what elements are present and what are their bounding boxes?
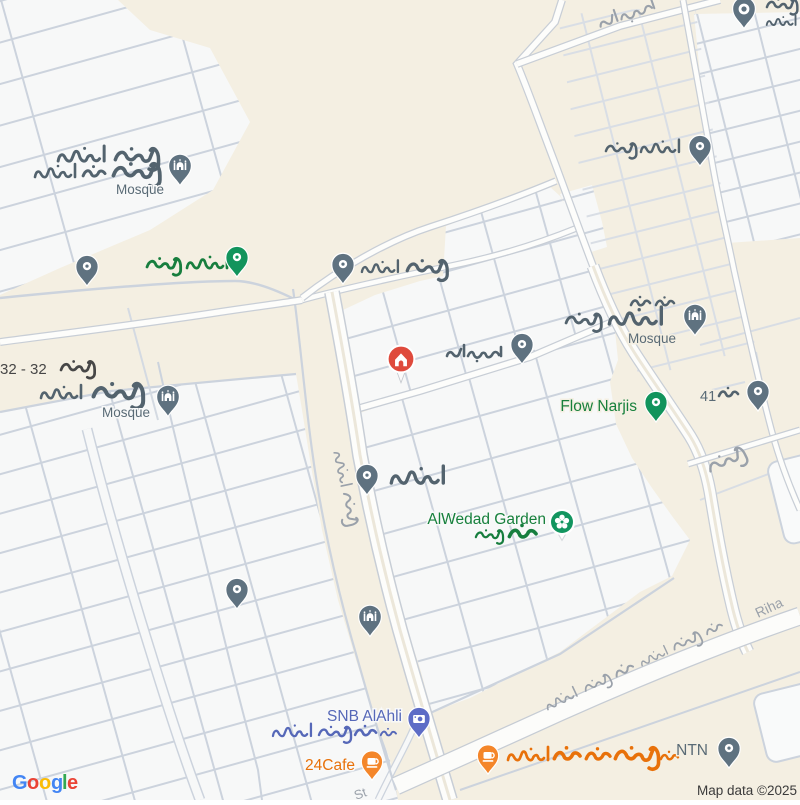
svg-text:Mosque: Mosque xyxy=(116,182,164,197)
svg-text:AlWedad Garden: AlWedad Garden xyxy=(427,511,546,528)
svg-text:Flow Narjis: Flow Narjis xyxy=(560,398,637,415)
svg-text:32 - 32: 32 - 32 xyxy=(0,361,47,378)
svg-text:Map data ©2025: Map data ©2025 xyxy=(697,783,797,798)
svg-text:o: o xyxy=(39,772,51,794)
svg-text:Mosque: Mosque xyxy=(628,331,676,346)
svg-text:Mosque: Mosque xyxy=(102,405,150,420)
svg-text:o: o xyxy=(27,772,39,794)
svg-text:e: e xyxy=(67,772,78,794)
svg-text:SNB AlAhli: SNB AlAhli xyxy=(327,708,402,725)
svg-text:41: 41 xyxy=(700,389,716,405)
svg-text:NTN: NTN xyxy=(676,742,708,759)
svg-text:24Cafe: 24Cafe xyxy=(305,757,355,774)
svg-text:G: G xyxy=(12,772,28,794)
